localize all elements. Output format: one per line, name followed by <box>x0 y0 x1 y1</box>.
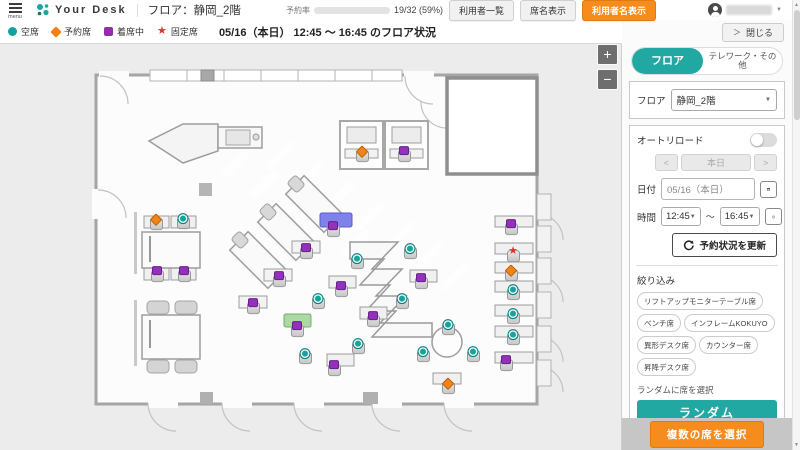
seat-marker-available[interactable] <box>348 252 366 270</box>
occupancy-bar <box>314 7 390 14</box>
start-time-select[interactable]: 12:45 ▼ <box>661 207 701 226</box>
next-day-button[interactable]: > <box>754 154 777 171</box>
seat-marker-available[interactable] <box>401 242 419 260</box>
filter-label: 絞り込み <box>637 273 777 287</box>
bottom-action-bar: 複数の席を選択 <box>622 418 792 450</box>
chevron-right-icon: ＞ <box>733 27 741 38</box>
caret-down-icon: ▼ <box>776 7 782 13</box>
caret-down-icon: ▼ <box>690 214 696 220</box>
scrollbar-thumb[interactable] <box>794 10 800 120</box>
close-panel-button[interactable]: ＞ 閉じる <box>722 23 784 42</box>
map-zoom-controls: + − <box>597 44 618 90</box>
occupied-seat-icon <box>104 27 113 36</box>
autoreload-label: オートリロード <box>637 133 704 147</box>
divider <box>636 265 778 266</box>
close-label: 閉じる <box>746 26 773 39</box>
seat-marker-available[interactable] <box>504 283 522 301</box>
seat-marker-occupied[interactable] <box>325 359 343 377</box>
seat-marker-occupied[interactable] <box>244 297 262 315</box>
legend-item-reserved: 予約席 <box>52 25 91 38</box>
today-button[interactable]: 本日 <box>681 154 751 171</box>
legend-item-occupied: 着席中 <box>104 25 144 38</box>
seat-marker-available[interactable] <box>504 307 522 325</box>
seat-marker-reserved[interactable] <box>502 264 520 282</box>
caret-down-icon: ▼ <box>765 97 771 103</box>
fixed-seat-icon: ★ <box>157 27 167 36</box>
filter-chip[interactable]: 異形デスク席 <box>637 336 696 354</box>
legend-bar: 空席 予約席 着席中 ★ 固定席 05/16（本日） 12:45 ～ 16:45… <box>0 20 622 44</box>
seat-marker-occupied[interactable] <box>175 265 193 283</box>
filter-chip[interactable]: ベンチ席 <box>637 314 681 332</box>
seat-marker-fixed[interactable]: ★ <box>504 245 522 263</box>
yourdesk-logo: Your Desk <box>36 3 127 17</box>
autoreload-toggle[interactable] <box>750 133 777 147</box>
seat-name-toggle-button[interactable]: 席名表示 <box>520 0 576 21</box>
seat-marker-available[interactable] <box>349 337 367 355</box>
scroll-up-arrow[interactable]: ▲ <box>794 0 799 10</box>
seat-marker-occupied[interactable] <box>364 310 382 328</box>
tab-telework-other[interactable]: テレワーク・その他 <box>703 48 782 74</box>
divider <box>137 4 138 17</box>
view-tabs: フロア テレワーク・その他 <box>631 47 783 75</box>
floor-status-text: 05/16（本日） 12:45 ～ 16:45 のフロア状況 <box>219 24 436 40</box>
caret-down-icon: ▼ <box>749 214 755 220</box>
filter-chip[interactable]: カウンター席 <box>699 336 758 354</box>
brand-name: Your Desk <box>55 4 127 16</box>
floor-select-label: フロア <box>637 93 666 107</box>
seat-marker-occupied[interactable] <box>395 145 413 163</box>
tab-floor[interactable]: フロア <box>632 48 703 74</box>
seat-marker-available[interactable] <box>174 212 192 230</box>
seat-marker-occupied[interactable] <box>324 220 342 238</box>
seat-marker-occupied[interactable] <box>148 265 166 283</box>
reserved-seat-icon <box>50 26 61 37</box>
sidebar: ＞ 閉じる フロア テレワーク・その他 フロア 静岡_2階 ▼ オートリロード … <box>622 20 792 450</box>
refresh-icon <box>683 240 694 251</box>
menu-label: menu <box>8 15 22 20</box>
zoom-in-button[interactable]: + <box>597 44 618 65</box>
filter-chip[interactable]: インフレームKOKUYO <box>684 314 775 332</box>
seat-marker-available[interactable] <box>296 347 314 365</box>
seat-marker-occupied[interactable] <box>502 218 520 236</box>
date-label: 日付 <box>637 182 656 196</box>
floor-map-area: ★ + − <box>0 44 622 450</box>
hamburger-menu-button[interactable]: menu <box>4 3 26 20</box>
scroll-down-arrow[interactable]: ▼ <box>794 440 799 450</box>
seat-marker-occupied[interactable] <box>412 272 430 290</box>
legend-item-fixed: ★ 固定席 <box>157 25 198 38</box>
user-name-redacted <box>726 5 772 15</box>
floor-select-panel: フロア 静岡_2階 ▼ <box>629 81 785 119</box>
yourdesk-logo-icon <box>36 3 50 17</box>
time-separator: ～ <box>706 210 715 223</box>
calendar-button[interactable] <box>760 181 777 198</box>
top-bar: menu Your Desk フロア：静岡_2階 予約率 19/32 (59%)… <box>0 0 792 20</box>
page-title: フロア：静岡_2階 <box>148 2 241 18</box>
seat-marker-available[interactable] <box>439 318 457 336</box>
legend-item-vacant: 空席 <box>8 25 39 38</box>
refresh-reservations-button[interactable]: 予約状況を更新 <box>672 233 777 257</box>
seat-marker-available[interactable] <box>414 345 432 363</box>
seat-marker-reserved[interactable] <box>439 377 457 395</box>
seat-marker-available[interactable] <box>309 292 327 310</box>
seat-marker-reserved[interactable] <box>147 213 165 231</box>
filter-chips: リフトアップモニターテーブル席 ベンチ席 インフレームKOKUYO 異形デスク席… <box>637 292 777 376</box>
page-scrollbar: ▲ ▼ <box>792 0 800 450</box>
occupancy-label: 予約率 <box>286 5 310 16</box>
user-name-toggle-button[interactable]: 利用者名表示 <box>582 0 656 21</box>
filter-chip[interactable]: リフトアップモニターテーブル席 <box>637 292 763 310</box>
date-nav: < 本日 > <box>655 154 777 171</box>
calendar-icon <box>767 184 770 195</box>
seats-layer: ★ <box>0 44 622 450</box>
multi-seat-select-button[interactable]: 複数の席を選択 <box>650 421 765 448</box>
time-label: 時間 <box>637 210 656 224</box>
end-time-select[interactable]: 16:45 ▼ <box>720 207 760 226</box>
clock-button[interactable] <box>765 208 782 225</box>
avatar <box>708 3 722 17</box>
seat-marker-available[interactable] <box>464 345 482 363</box>
seat-marker-occupied[interactable] <box>332 280 350 298</box>
hamburger-icon <box>9 3 22 5</box>
seat-marker-occupied[interactable] <box>288 320 306 338</box>
clock-icon <box>772 211 775 223</box>
seat-marker-reserved[interactable] <box>353 145 371 163</box>
seat-marker-occupied[interactable] <box>297 242 315 260</box>
seat-marker-available[interactable] <box>504 328 522 346</box>
vacant-seat-icon <box>8 27 17 36</box>
seat-marker-occupied[interactable] <box>270 270 288 288</box>
random-seat-label: ランダムに席を選択 <box>637 384 777 396</box>
floor-select[interactable]: 静岡_2階 ▼ <box>671 89 777 111</box>
prev-day-button[interactable]: < <box>655 154 678 171</box>
booking-panel: オートリロード < 本日 > 日付 05/16（本日） 時間 <box>629 125 785 432</box>
account-menu[interactable]: ▼ <box>708 3 782 17</box>
zoom-out-button[interactable]: − <box>597 69 618 90</box>
date-input[interactable]: 05/16（本日） <box>661 178 755 200</box>
filter-chip[interactable]: 昇降デスク席 <box>637 358 696 376</box>
occupancy-value: 19/32 (59%) <box>394 5 443 15</box>
occupancy-indicator: 予約率 19/32 (59%) <box>286 5 443 16</box>
seat-marker-occupied[interactable] <box>497 354 515 372</box>
user-list-button[interactable]: 利用者一覧 <box>449 0 514 21</box>
seat-marker-available[interactable] <box>393 292 411 310</box>
